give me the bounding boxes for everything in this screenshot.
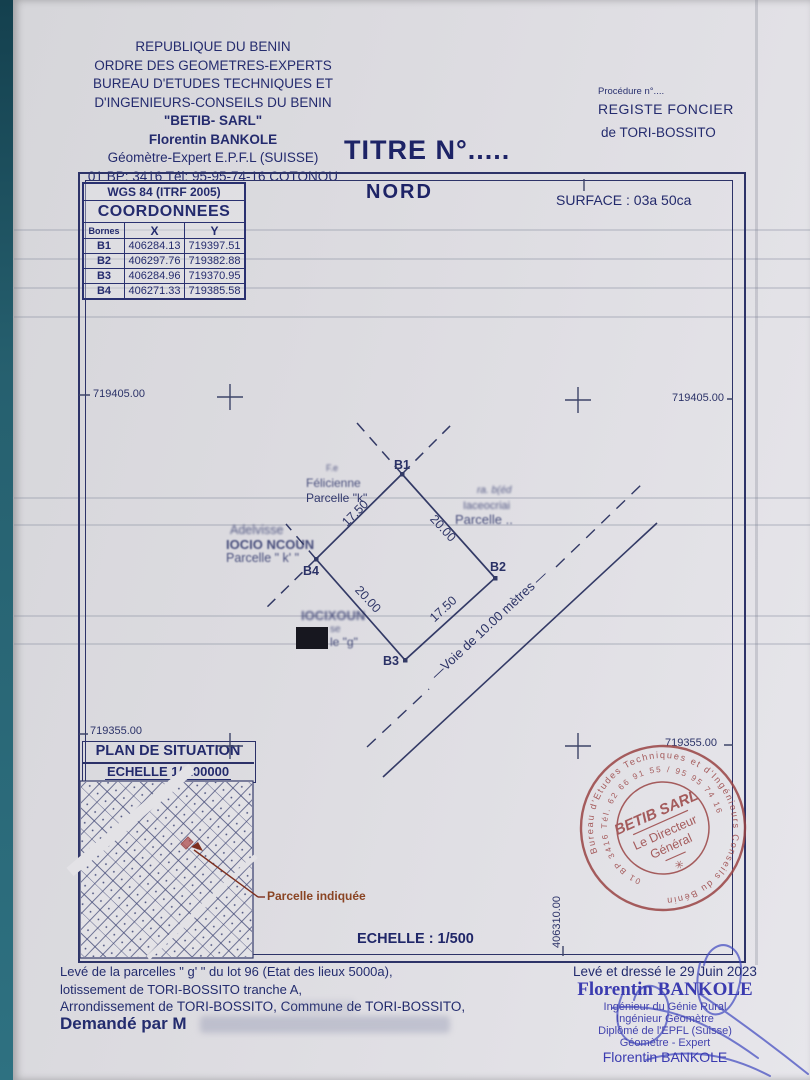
surveyor-title4: Géomètre - Expert (535, 1037, 795, 1049)
borne-b2-marker (493, 576, 498, 581)
footer-desc-line1: Levé de la parcelles " g' " du lot 96 (E… (60, 964, 393, 979)
grid-label-south-easting: 406310.00 (551, 896, 563, 948)
redacted-name-smudge (200, 1016, 450, 1033)
footer-requested-by: Demandé par M (60, 1014, 187, 1034)
surveyor-name-stamp: Florentin BANKOLE (535, 979, 795, 1001)
footer-desc-line2: lotissement de TORI-BOSSITO tranche A, (60, 982, 302, 997)
surveyor-title3: Diplômé de l'EPFL (Suisse) (535, 1025, 795, 1037)
surveyor-title1: Ingénieur du Génie Rural (535, 1001, 795, 1013)
road: —Voie de 10.00 mètres — (367, 483, 657, 777)
smudge (285, 1000, 355, 1013)
borne-b4-label: B4 (303, 564, 319, 578)
side-length-b3b2: 17.50 (427, 593, 459, 625)
borne-b3-marker (403, 658, 408, 663)
side-length-b4b3: 20.00 (352, 583, 384, 615)
betib-stamp: Bureau d'Etudes Techniques et d'Ingénieu… (555, 720, 772, 937)
side-length-b1b2: 20.00 (427, 512, 459, 544)
stamp-flower-icon: ✳ (673, 858, 686, 873)
surveyor-name2: Florentin BANKOLE (535, 1049, 795, 1065)
plan-drawing-layer: B1 B2 B3 B4 17.50 20.00 20.00 17.50 —Voi… (0, 0, 810, 1080)
footer-desc-line3: Arrondissement de TORI-BOSSITO, Commune … (60, 999, 465, 1014)
surveyor-title2: Ingénieur Géomètre (535, 1013, 795, 1025)
footer-date: Levé et dressé le 29 Juin 2023 (535, 964, 795, 979)
side-length-b4b1: 17.50 (339, 497, 371, 529)
situation-map (70, 768, 265, 958)
borne-b3-label: B3 (383, 654, 399, 668)
borne-b1-label: B1 (394, 458, 410, 472)
scanned-survey-document: REPUBLIQUE DU BENIN ORDRE DES GEOMETRES-… (0, 0, 810, 1080)
borne-b2-label: B2 (490, 560, 506, 574)
